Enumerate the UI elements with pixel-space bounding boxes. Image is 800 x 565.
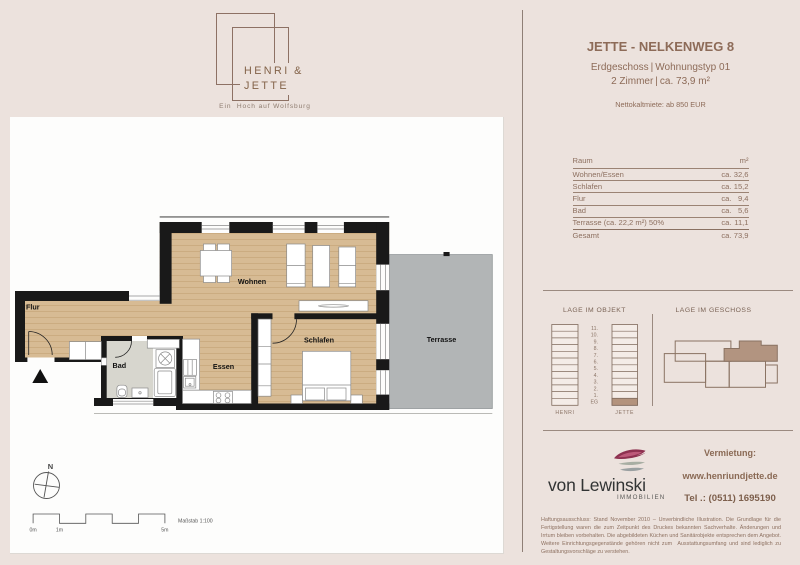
svg-text:5.: 5.: [594, 366, 598, 372]
svg-text:EG: EG: [591, 400, 599, 406]
svg-text:Bad: Bad: [113, 361, 127, 370]
svg-text:Schlafen: Schlafen: [304, 336, 334, 345]
svg-text:8.: 8.: [594, 346, 598, 352]
svg-text:2.: 2.: [594, 386, 598, 392]
svg-text:7.: 7.: [594, 353, 598, 359]
svg-text:Terrasse: Terrasse: [427, 335, 456, 344]
svg-text:1.: 1.: [594, 393, 598, 399]
svg-text:4.: 4.: [594, 373, 598, 379]
svg-text:1m: 1m: [56, 528, 63, 534]
svg-text:3.: 3.: [594, 380, 598, 386]
svg-text:Maßstab 1:100: Maßstab 1:100: [178, 519, 213, 525]
svg-text:11.: 11.: [591, 326, 598, 332]
svg-text:JETTE: JETTE: [615, 410, 634, 416]
svg-text:10.: 10.: [591, 333, 598, 339]
svg-text:0m: 0m: [29, 528, 36, 534]
svg-text:N: N: [48, 462, 53, 471]
svg-text:6.: 6.: [594, 360, 598, 366]
svg-text:Flur: Flur: [26, 303, 40, 312]
svg-text:5m: 5m: [161, 528, 168, 534]
svg-text:Essen: Essen: [213, 362, 234, 371]
svg-text:HENRI: HENRI: [555, 410, 574, 416]
svg-text:Wohnen: Wohnen: [238, 277, 266, 286]
svg-text:9.: 9.: [594, 339, 598, 345]
